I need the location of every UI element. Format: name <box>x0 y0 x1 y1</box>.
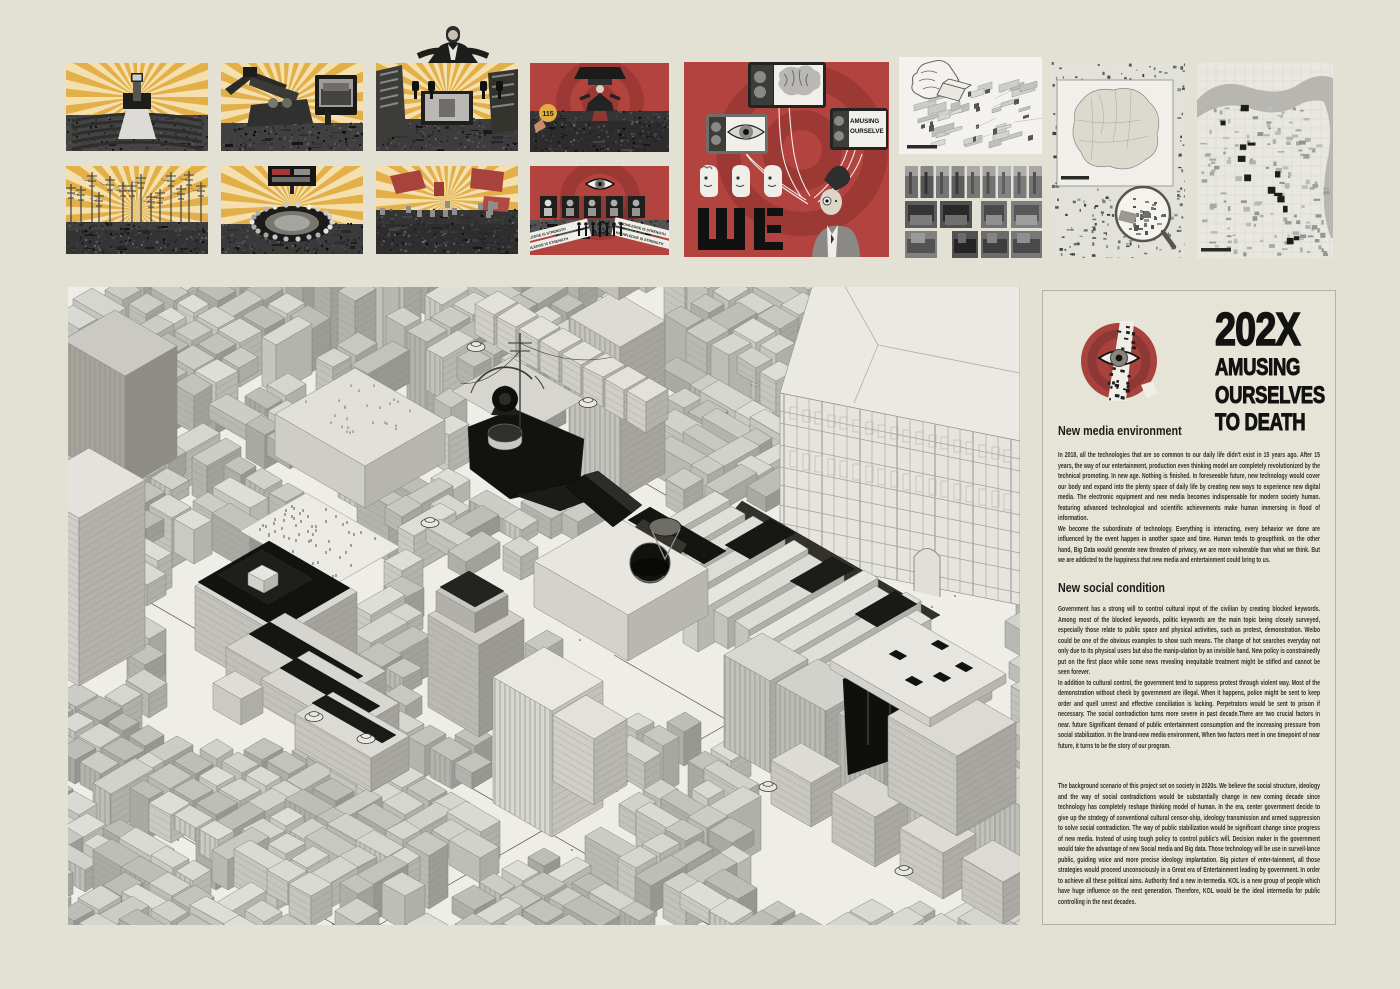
svg-text:115: 115 <box>542 111 553 118</box>
svg-text:OURSELVE: OURSELVE <box>850 128 884 135</box>
svg-text:AMUSING: AMUSING <box>850 118 879 125</box>
